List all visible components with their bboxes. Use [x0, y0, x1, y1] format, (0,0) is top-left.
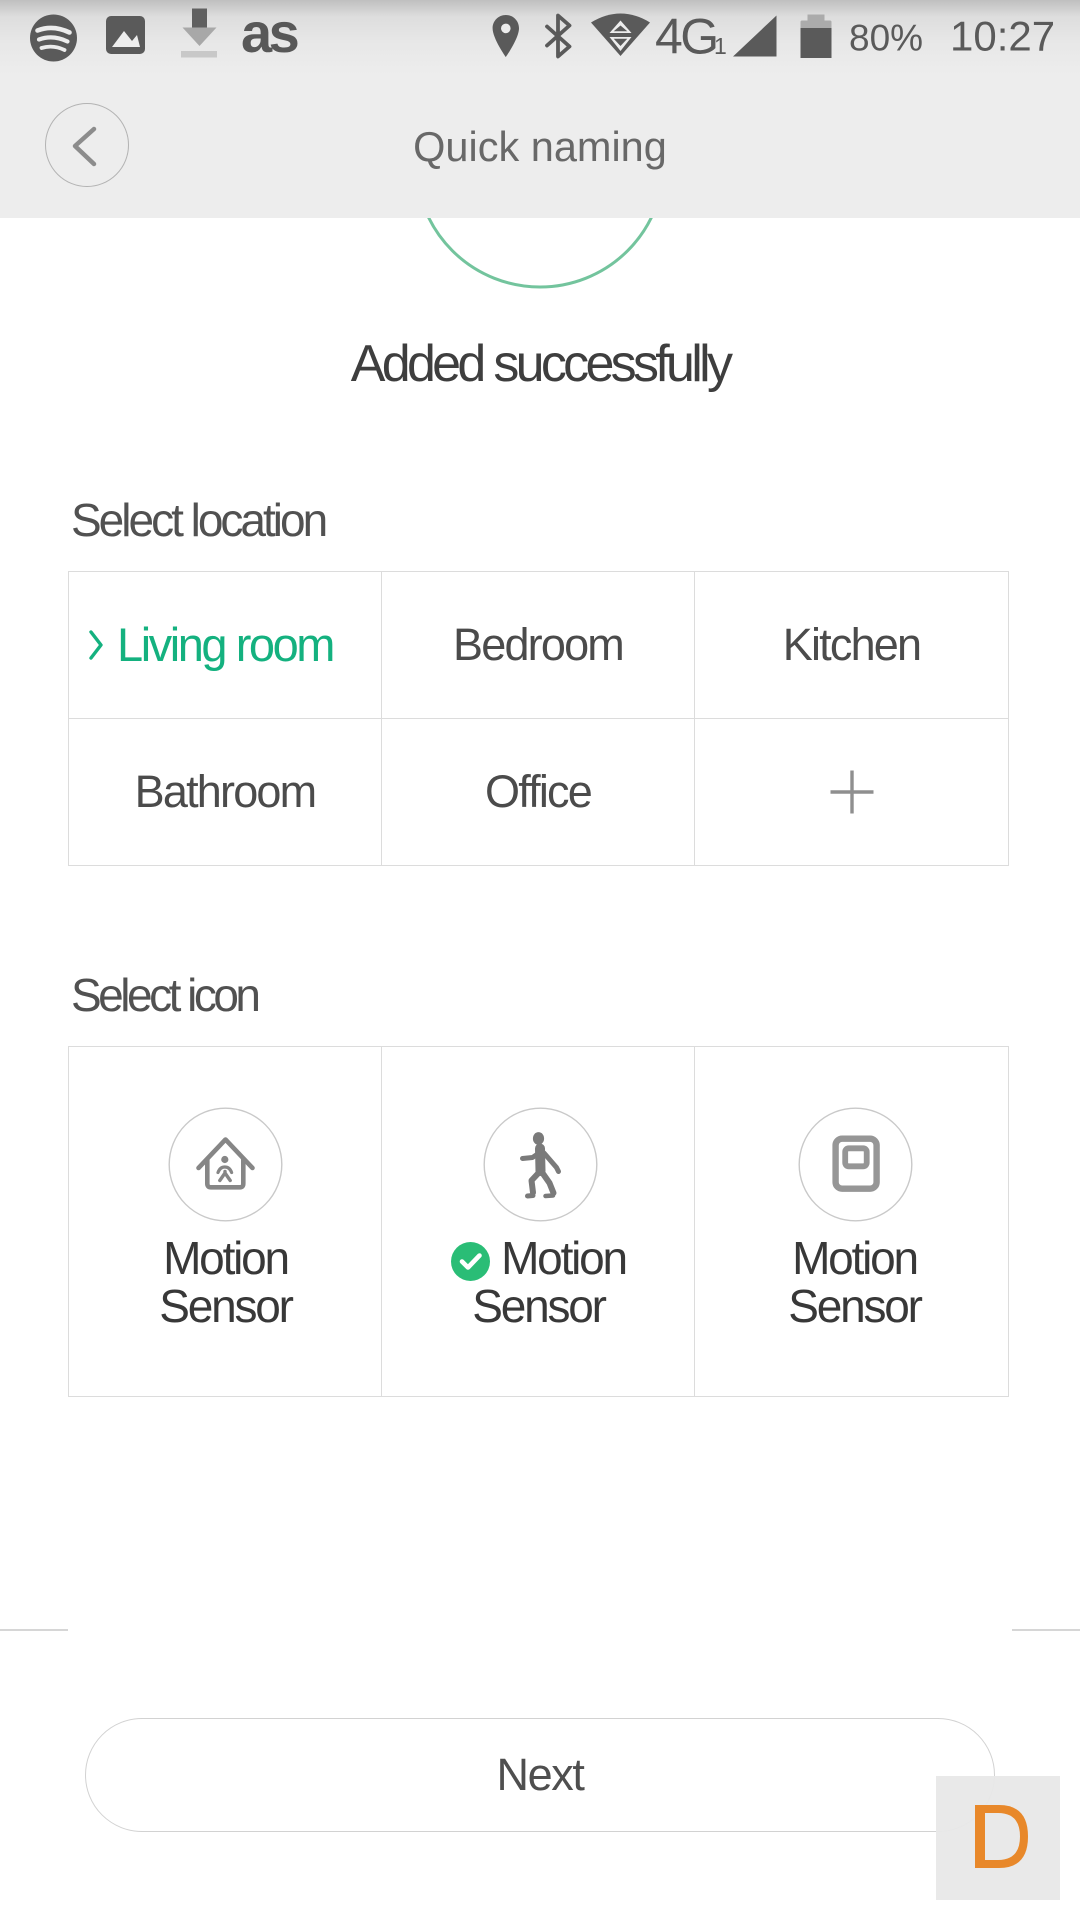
svg-text:4G: 4G [655, 9, 717, 65]
svg-text:80%: 80% [849, 18, 923, 59]
svg-text:as: as [241, 1, 298, 64]
svg-text:10:27: 10:27 [950, 13, 1055, 60]
svg-text:1: 1 [714, 33, 727, 59]
